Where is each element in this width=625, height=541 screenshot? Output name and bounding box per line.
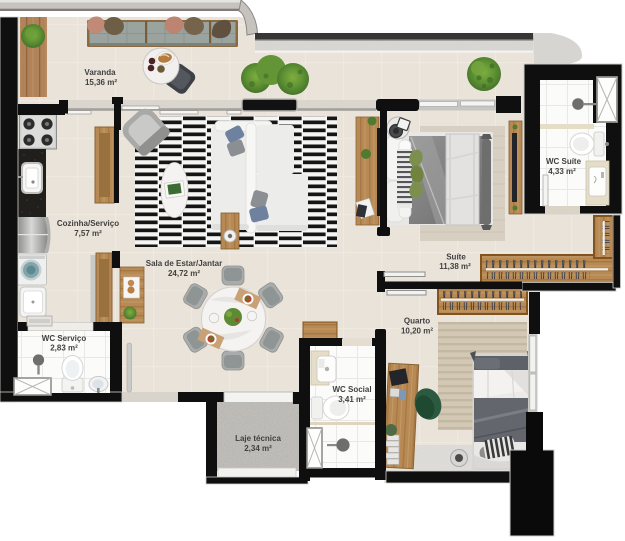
svg-text:10,20 m²: 10,20 m²	[401, 327, 433, 336]
svg-text:WC Suíte: WC Suíte	[546, 157, 582, 166]
svg-text:WC Social: WC Social	[332, 385, 371, 394]
svg-text:WC Serviço: WC Serviço	[42, 334, 87, 343]
svg-text:2,34 m²: 2,34 m²	[244, 444, 272, 453]
svg-text:24,72 m²: 24,72 m²	[168, 269, 200, 278]
svg-text:Varanda: Varanda	[84, 68, 116, 77]
svg-text:Sala de Estar/Jantar: Sala de Estar/Jantar	[146, 259, 222, 268]
svg-text:Cozinha/Serviço: Cozinha/Serviço	[57, 219, 119, 228]
svg-text:3,41 m²: 3,41 m²	[338, 395, 366, 404]
svg-text:Quarto: Quarto	[404, 317, 430, 326]
svg-text:2,83 m²: 2,83 m²	[50, 344, 78, 353]
svg-text:15,36 m²: 15,36 m²	[85, 78, 117, 87]
svg-text:Suíte: Suíte	[446, 253, 466, 262]
svg-text:7,57 m²: 7,57 m²	[74, 229, 102, 238]
svg-text:Laje técnica: Laje técnica	[235, 434, 281, 443]
svg-text:4,33 m²: 4,33 m²	[548, 167, 576, 176]
svg-text:11,38 m²: 11,38 m²	[439, 262, 471, 271]
